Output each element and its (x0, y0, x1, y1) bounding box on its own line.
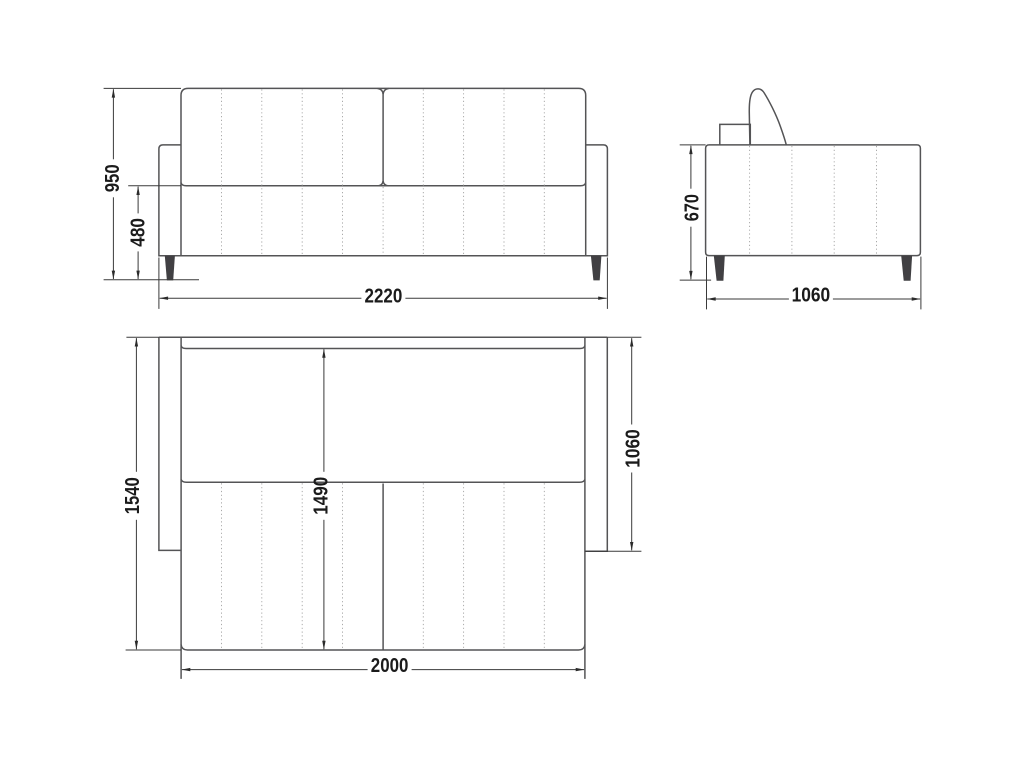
svg-text:670: 670 (681, 194, 703, 221)
svg-text:480: 480 (128, 218, 150, 247)
svg-text:1060: 1060 (792, 285, 831, 307)
svg-text:1060: 1060 (622, 429, 644, 468)
svg-text:1540: 1540 (122, 477, 144, 514)
svg-text:2220: 2220 (365, 285, 403, 307)
svg-text:1490: 1490 (310, 477, 332, 515)
svg-text:950: 950 (102, 164, 124, 192)
svg-text:2000: 2000 (371, 655, 409, 677)
